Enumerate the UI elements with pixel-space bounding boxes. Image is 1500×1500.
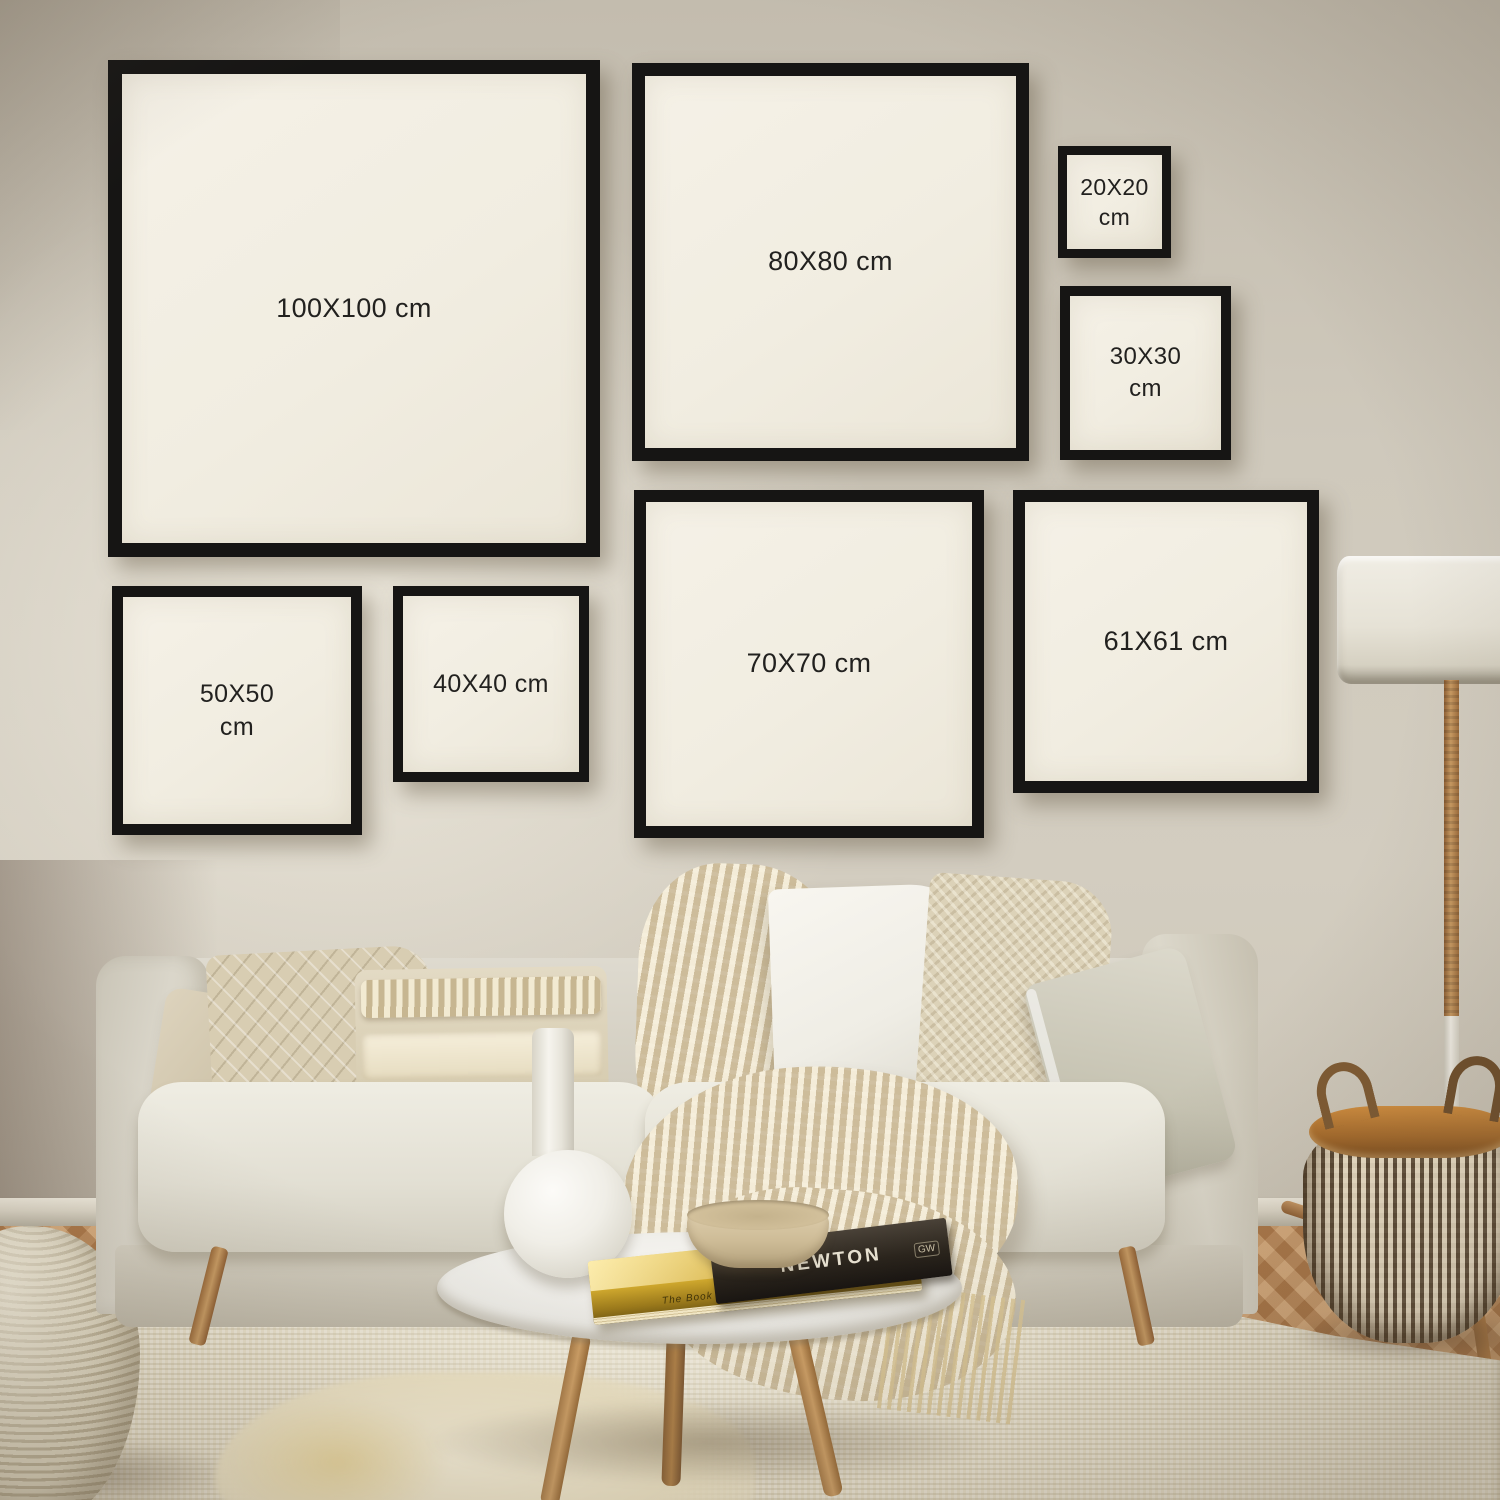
frame-label-30x30: 30X30 cm <box>1106 341 1186 404</box>
frame-label-40x40: 40X40 cm <box>433 668 549 701</box>
frame-20x20: 20X20 cm <box>1058 146 1171 258</box>
frame-50x50: 50X50 cm <box>112 586 362 835</box>
floor-lamp-shade <box>1337 556 1500 684</box>
frame-61x61: 61X61 cm <box>1013 490 1319 793</box>
book-newton-publisher-mark: GW <box>913 1240 940 1258</box>
coffee-table-shadow <box>430 1400 990 1484</box>
frame-label-61x61: 61X61 cm <box>1104 624 1229 660</box>
bowl-rim <box>687 1200 829 1230</box>
frame-80x80: 80X80 cm <box>632 63 1029 461</box>
frame-label-100x100: 100X100 cm <box>276 291 432 327</box>
frame-70x70: 70X70 cm <box>634 490 984 838</box>
frame-100x100: 100X100 cm <box>108 60 600 557</box>
frame-label-20x20: 20X20 cm <box>1075 172 1155 233</box>
frame-30x30: 30X30 cm <box>1060 286 1231 460</box>
frame-40x40: 40X40 cm <box>393 586 589 782</box>
pillow-braid-band <box>361 976 602 1018</box>
frame-label-70x70: 70X70 cm <box>747 646 872 682</box>
floor-lamp-pole-wood <box>1444 680 1459 1020</box>
living-room-frame-size-guide: 100X100 cm 80X80 cm 20X20 cm 30X30 cm 50… <box>0 0 1500 1500</box>
frame-label-80x80: 80X80 cm <box>768 244 893 280</box>
frame-label-50x50: 50X50 cm <box>197 678 277 744</box>
vase-neck <box>532 1028 574 1156</box>
